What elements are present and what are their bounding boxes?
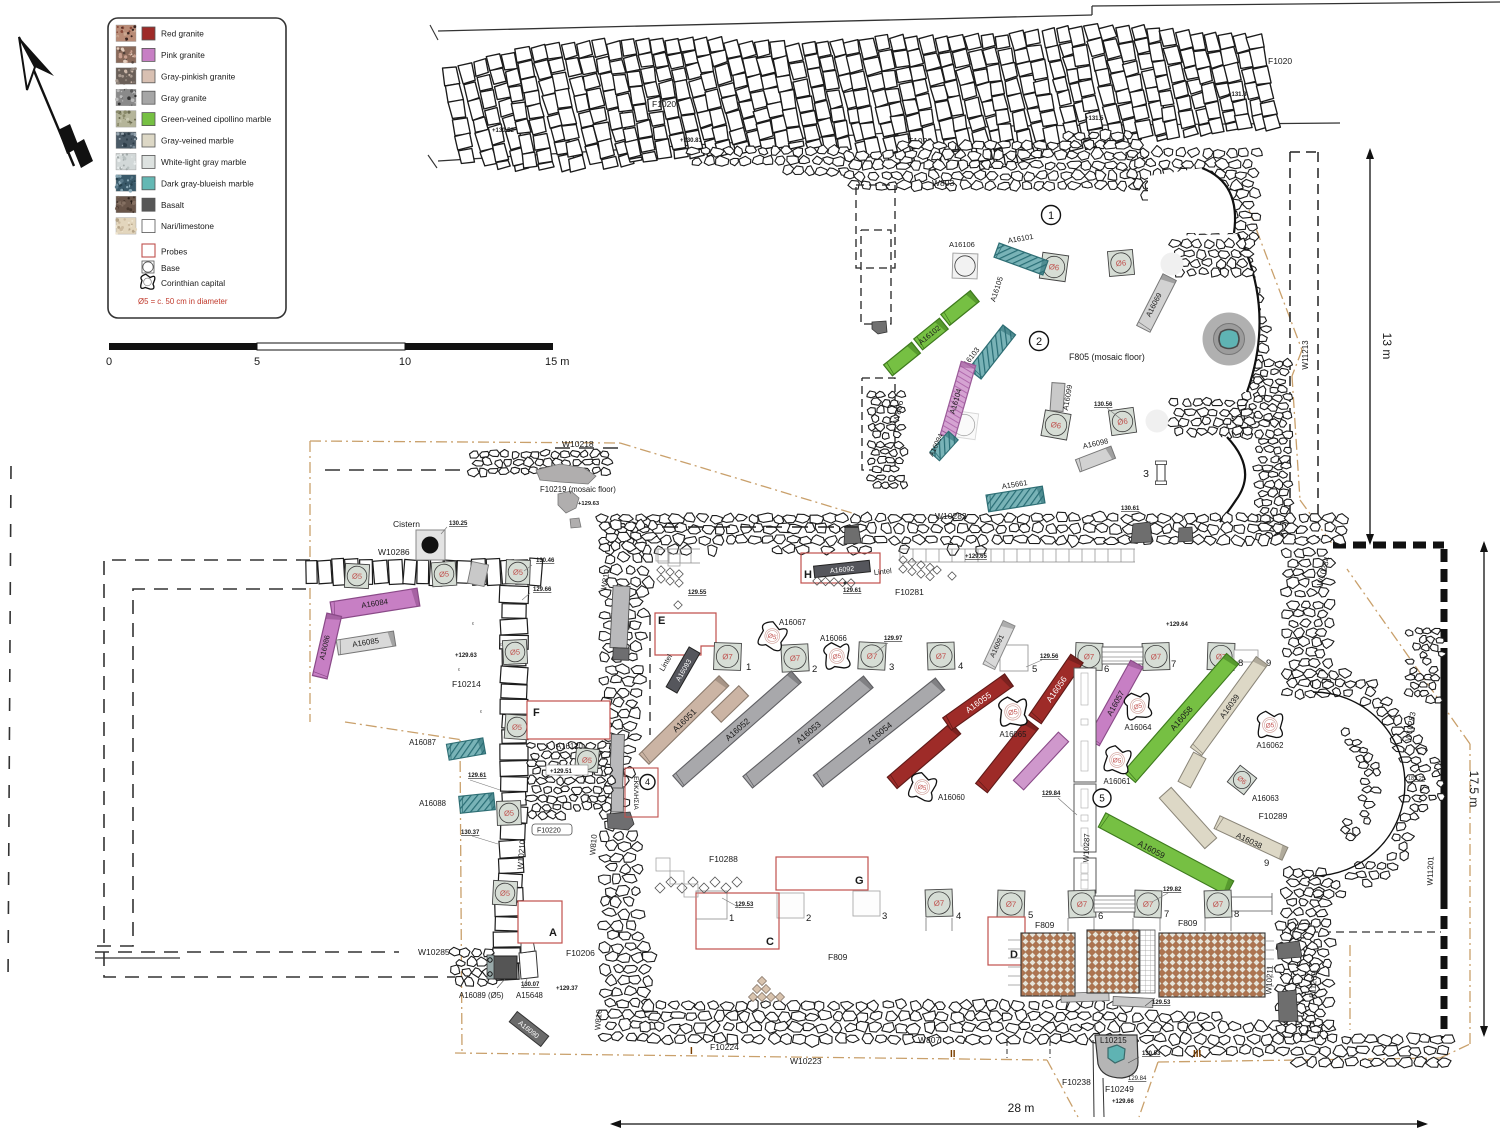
svg-text:6: 6: [1104, 664, 1109, 675]
svg-text:F10281: F10281: [895, 587, 924, 597]
svg-text:D: D: [1010, 949, 1018, 961]
svg-text:3: 3: [889, 662, 894, 673]
svg-text:1: 1: [746, 662, 751, 673]
svg-text:A16088: A16088: [419, 799, 446, 808]
svg-text:129.56: 129.56: [1040, 654, 1059, 660]
svg-text:A16066: A16066: [820, 634, 847, 643]
svg-text:7: 7: [1164, 909, 1169, 920]
svg-text:Lintel: Lintel: [873, 566, 892, 577]
svg-text:II: II: [950, 1049, 956, 1060]
svg-text:4: 4: [958, 661, 963, 672]
svg-text:Base: Base: [161, 263, 180, 273]
svg-text:17.5 m: 17.5 m: [1467, 771, 1481, 808]
svg-text:Red granite: Red granite: [161, 29, 204, 39]
svg-text:F10219 (mosaic floor): F10219 (mosaic floor): [540, 485, 616, 494]
svg-text:F805 (mosaic floor): F805 (mosaic floor): [1069, 352, 1145, 362]
svg-text:L10215: L10215: [1100, 1036, 1127, 1045]
svg-text:Ø7: Ø7: [1151, 652, 1162, 661]
svg-text:Pink granite: Pink granite: [161, 50, 205, 60]
svg-text:Gray granite: Gray granite: [161, 93, 207, 103]
svg-text:Ø7: Ø7: [722, 652, 733, 661]
svg-text:Dark gray-blueish marble: Dark gray-blueish marble: [161, 178, 254, 188]
svg-text:10: 10: [399, 356, 411, 368]
svg-text:W10282: W10282: [935, 511, 967, 521]
svg-text:G: G: [855, 875, 864, 887]
svg-text:129.55: 129.55: [688, 590, 707, 596]
svg-text:15 m: 15 m: [545, 356, 569, 368]
svg-text:+129.63: +129.63: [578, 501, 600, 507]
svg-text:2: 2: [1036, 336, 1042, 348]
svg-text:Ø5: Ø5: [504, 809, 514, 818]
svg-text:182.25: 182.25: [1408, 776, 1425, 782]
svg-text:+129.37: +129.37: [556, 986, 579, 992]
svg-text:129.97: 129.97: [884, 636, 903, 642]
svg-text:W10286: W10286: [378, 547, 410, 557]
svg-text:9: 9: [1266, 658, 1271, 669]
svg-text:Ø7: Ø7: [1084, 652, 1095, 661]
svg-text:A15648: A15648: [516, 991, 543, 1000]
svg-text:Ø7: Ø7: [790, 654, 801, 664]
svg-text:Ø5: Ø5: [500, 888, 510, 898]
svg-text:F10206: F10206: [566, 948, 595, 958]
svg-text:Gray-pinkish granite: Gray-pinkish granite: [161, 71, 236, 81]
svg-text:Ø5: Ø5: [352, 571, 362, 581]
svg-text:28 m: 28 m: [1008, 1101, 1035, 1115]
svg-text:W10287: W10287: [1081, 833, 1091, 862]
svg-text:Ø5: Ø5: [513, 568, 523, 577]
svg-text:2: 2: [806, 913, 811, 924]
svg-text:Ø6: Ø6: [1048, 262, 1060, 272]
svg-text:ΕΚΚΛΗΣΙΑ: ΕΚΚΛΗΣΙΑ: [632, 776, 639, 810]
svg-text:Ø7: Ø7: [1077, 900, 1088, 909]
svg-text:4: 4: [645, 777, 650, 787]
svg-text:+131.5: +131.5: [1085, 116, 1104, 122]
svg-text:Ø5: Ø5: [1265, 722, 1275, 730]
svg-text:I: I: [690, 1046, 693, 1057]
svg-text:+129.66: +129.66: [1112, 1099, 1135, 1105]
svg-text:III: III: [1193, 1049, 1202, 1060]
svg-text:8: 8: [1234, 909, 1239, 920]
svg-text:W11201: W11201: [1425, 856, 1435, 886]
svg-text:W10285: W10285: [418, 947, 450, 957]
svg-text:A16061: A16061: [1104, 777, 1131, 786]
svg-text:Ø5: Ø5: [512, 722, 523, 732]
svg-text:Ø5: Ø5: [1112, 757, 1122, 765]
svg-text:129.61: 129.61: [843, 588, 862, 594]
svg-text:129.66: 129.66: [533, 587, 552, 593]
svg-text:+130.52: +130.52: [492, 128, 515, 134]
svg-text:130.25: 130.25: [449, 521, 468, 527]
svg-text:+131.8: +131.8: [1228, 92, 1247, 98]
svg-text:White-light gray marble: White-light gray marble: [161, 157, 247, 167]
svg-text:129.61: 129.61: [468, 773, 487, 779]
svg-text:Ø7: Ø7: [1143, 900, 1154, 909]
svg-text:+129.63: +129.63: [455, 653, 478, 659]
svg-text:Green-veined cipollino marble: Green-veined cipollino marble: [161, 114, 272, 124]
svg-text:129.84: 129.84: [1128, 1076, 1147, 1082]
svg-text:Ø5: Ø5: [582, 755, 593, 765]
svg-text:Probes: Probes: [161, 247, 187, 257]
svg-text:F1020: F1020: [1268, 56, 1292, 66]
svg-text:F809: F809: [1178, 918, 1198, 928]
svg-text:Ø6: Ø6: [1115, 258, 1126, 268]
svg-text:130.37: 130.37: [461, 830, 480, 836]
svg-text:Ø5: Ø5: [1008, 708, 1019, 717]
svg-text:7: 7: [1171, 659, 1176, 670]
svg-text:Ø6: Ø6: [1117, 417, 1129, 427]
svg-text:5: 5: [254, 356, 260, 368]
svg-text:Ø6: Ø6: [1050, 420, 1062, 431]
svg-text:5: 5: [1028, 910, 1033, 921]
svg-text:3: 3: [882, 911, 887, 922]
svg-text:F1020: F1020: [652, 99, 676, 109]
svg-text:W810: W810: [593, 1008, 604, 1030]
svg-text:A16062: A16062: [1257, 741, 1284, 750]
svg-text:3: 3: [1143, 468, 1149, 480]
svg-text:A16106: A16106: [949, 240, 975, 249]
svg-text:2: 2: [812, 664, 817, 675]
svg-text:+129.64: +129.64: [1166, 622, 1189, 628]
svg-text:5: 5: [1032, 664, 1037, 675]
svg-text:A16089 (Ø5): A16089 (Ø5): [459, 991, 504, 1000]
svg-text:F10220: F10220: [537, 828, 561, 835]
svg-text:Ø7: Ø7: [1213, 900, 1224, 909]
svg-text:9: 9: [1264, 858, 1269, 869]
svg-text:Ø5 = c. 50 cm in diameter: Ø5 = c. 50 cm in diameter: [138, 297, 228, 306]
svg-text:0: 0: [106, 356, 112, 368]
svg-text:6: 6: [1098, 911, 1103, 922]
svg-text:Ø7: Ø7: [867, 652, 878, 662]
svg-text:130.53: 130.53: [1142, 1051, 1161, 1057]
svg-text:A16060: A16060: [938, 793, 966, 802]
svg-text:H: H: [804, 569, 812, 581]
svg-text:+129.51: +129.51: [550, 769, 573, 775]
svg-text:F10224: F10224: [710, 1042, 739, 1052]
svg-text:A16063: A16063: [1252, 794, 1279, 803]
svg-text:129.84: 129.84: [1042, 791, 1061, 797]
svg-text:Nari/limestone: Nari/limestone: [161, 221, 214, 231]
svg-text:Basalt: Basalt: [161, 200, 185, 210]
svg-text:+130.81: +130.81: [680, 138, 703, 144]
svg-text:130.56: 130.56: [1094, 402, 1113, 408]
svg-text:F10289: F10289: [1259, 811, 1288, 821]
svg-text:F10214: F10214: [452, 679, 481, 689]
svg-text:5: 5: [1099, 794, 1105, 805]
svg-text:130.07: 130.07: [521, 982, 540, 988]
svg-text:A16067: A16067: [779, 618, 806, 627]
svg-text:Cistern: Cistern: [393, 519, 420, 529]
svg-text:8: 8: [1238, 658, 1243, 669]
svg-text:Gray-veined marble: Gray-veined marble: [161, 136, 234, 146]
svg-text:E: E: [658, 615, 665, 627]
svg-text:129.53: 129.53: [1152, 1000, 1171, 1006]
svg-text:Ø7: Ø7: [936, 652, 947, 661]
svg-text:W810: W810: [588, 833, 599, 855]
svg-text:A16064: A16064: [1125, 723, 1153, 732]
svg-text:F809: F809: [828, 952, 848, 962]
svg-text:F: F: [533, 707, 540, 719]
svg-text:+129.65: +129.65: [965, 554, 988, 560]
svg-text:4: 4: [956, 911, 961, 922]
svg-text:1: 1: [1048, 210, 1054, 222]
svg-text:129.82: 129.82: [1163, 887, 1182, 893]
svg-text:Ø5: Ø5: [439, 569, 450, 579]
svg-text:W803: W803: [932, 178, 954, 188]
svg-text:Corinthian capital: Corinthian capital: [161, 278, 225, 288]
svg-text:A16120: A16120: [556, 742, 584, 751]
svg-text:A16087: A16087: [409, 738, 436, 747]
svg-text:F809: F809: [1035, 920, 1055, 930]
svg-text:13 m: 13 m: [1380, 333, 1394, 360]
svg-text:A: A: [549, 927, 557, 939]
svg-text:Ø7: Ø7: [1006, 900, 1017, 909]
svg-text:130.46: 130.46: [536, 558, 555, 564]
svg-text:Ø7: Ø7: [934, 899, 945, 908]
svg-text:130.61: 130.61: [1121, 506, 1140, 512]
svg-text:F10249: F10249: [1105, 1084, 1134, 1094]
svg-text:Ø5: Ø5: [510, 647, 520, 657]
svg-text:F10288: F10288: [709, 854, 738, 864]
svg-text:F10238: F10238: [1062, 1077, 1091, 1087]
svg-text:W10223: W10223: [790, 1056, 822, 1066]
svg-text:C: C: [766, 936, 774, 948]
svg-text:A16065: A16065: [1000, 730, 1028, 739]
svg-text:W807: W807: [918, 1035, 940, 1045]
svg-text:1: 1: [729, 913, 734, 924]
svg-text:W10211: W10211: [1264, 965, 1275, 995]
svg-text:W11213: W11213: [1301, 340, 1310, 370]
